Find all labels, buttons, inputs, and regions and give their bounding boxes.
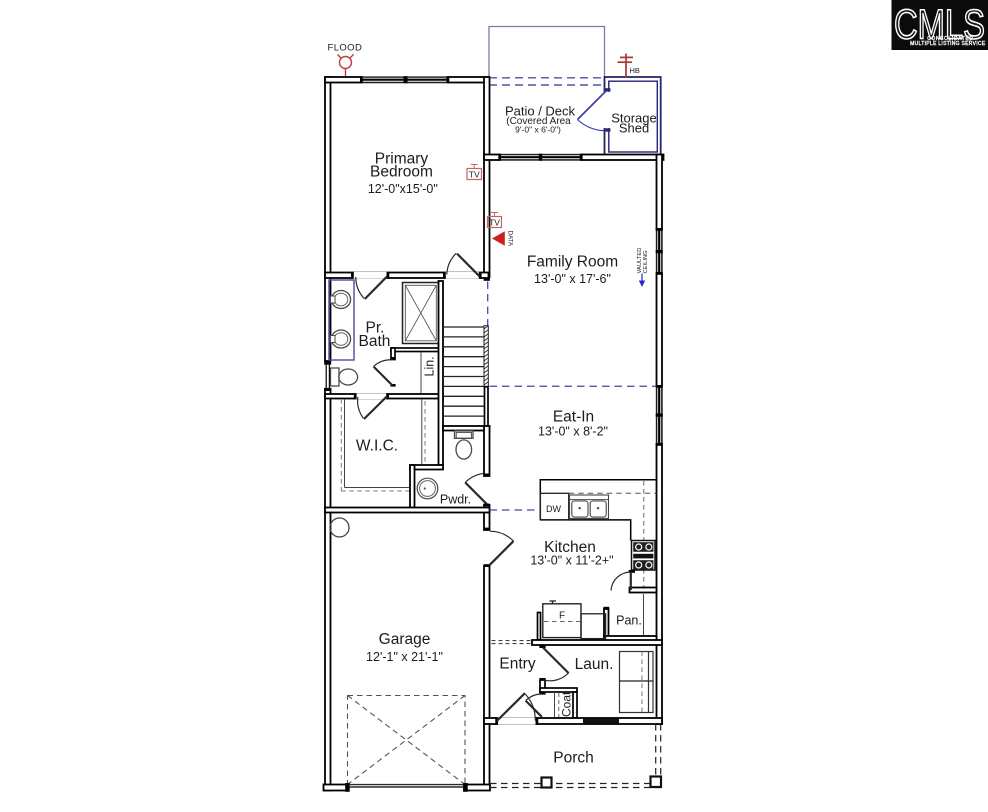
- svg-text:MULTIPLE LISTING SERVICE: MULTIPLE LISTING SERVICE: [910, 41, 986, 47]
- svg-text:Pwdr.: Pwdr.: [440, 493, 471, 507]
- svg-text:Laun.: Laun.: [575, 656, 614, 673]
- svg-text:W.I.C.: W.I.C.: [356, 438, 398, 455]
- svg-text:Lin.: Lin.: [423, 356, 437, 376]
- svg-text:TV: TV: [469, 170, 480, 180]
- svg-text:Bedroom: Bedroom: [370, 164, 433, 181]
- svg-text:Family Room: Family Room: [527, 254, 618, 271]
- svg-text:F: F: [559, 611, 565, 622]
- svg-text:CEILING: CEILING: [643, 250, 649, 274]
- svg-text:Porch: Porch: [553, 750, 594, 767]
- svg-text:9'-0" x 6'-0"): 9'-0" x 6'-0"): [515, 125, 561, 135]
- svg-text:DATA: DATA: [506, 231, 513, 247]
- svg-text:Entry: Entry: [499, 656, 535, 673]
- svg-text:12'-1" x 21'-1": 12'-1" x 21'-1": [366, 650, 443, 664]
- svg-text:Bath: Bath: [359, 333, 391, 350]
- svg-text:HB: HB: [630, 66, 640, 75]
- svg-text:13'-0" x 11'-2+": 13'-0" x 11'-2+": [530, 554, 613, 568]
- svg-text:Coat: Coat: [560, 691, 574, 717]
- svg-text:Garage: Garage: [379, 631, 431, 648]
- svg-text:TV: TV: [489, 218, 500, 228]
- svg-text:13'-0" x 17'-6": 13'-0" x 17'-6": [534, 272, 611, 286]
- svg-text:FLOOD: FLOOD: [328, 43, 363, 54]
- svg-text:13'-0" x 8'-2": 13'-0" x 8'-2": [538, 425, 608, 439]
- svg-text:Pan.: Pan.: [616, 614, 642, 628]
- svg-text:DW: DW: [546, 504, 561, 514]
- svg-text:Shed: Shed: [619, 121, 649, 136]
- svg-text:Eat-In: Eat-In: [553, 409, 594, 426]
- svg-text:12'-0"x15'-0": 12'-0"x15'-0": [368, 182, 438, 196]
